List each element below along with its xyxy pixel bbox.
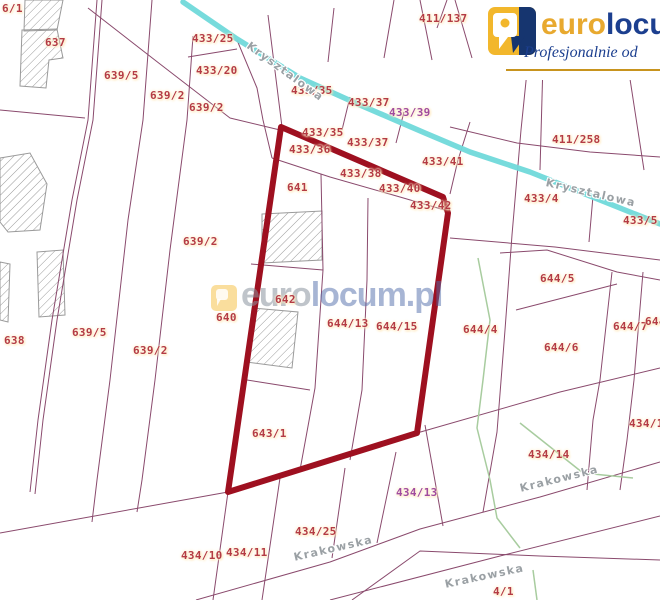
- parcel-boundary-line: [450, 127, 660, 157]
- parcel-boundary-line: [213, 492, 228, 600]
- brand-locum: locum: [606, 8, 660, 41]
- cadastral-map-page: { "logo": { "brand_euro": "euro", "brand…: [0, 0, 660, 600]
- parcel-boundary-line: [247, 380, 310, 390]
- cadastral-map-canvas: [0, 0, 660, 600]
- parcel-boundary-line: [332, 468, 345, 558]
- brand-tagline: Profesjonalnie od: [524, 44, 638, 62]
- parcel-boundary-line: [88, 8, 280, 130]
- parcel-boundary-line: [500, 250, 660, 280]
- parcel-boundary-line: [352, 551, 660, 600]
- brand-name: eurolocum: [541, 8, 660, 42]
- parcel-boundary-line: [455, 0, 472, 58]
- vegetation-lines: [477, 258, 633, 600]
- brand-euro: euro: [541, 8, 606, 41]
- parcel-boundary-line: [137, 36, 193, 512]
- parcel-boundary-line: [620, 272, 643, 490]
- parcel-boundary-line: [516, 284, 617, 310]
- parcel-boundary-line: [188, 49, 237, 57]
- parcel-boundary-line: [268, 15, 282, 127]
- eurolocum-logo[interactable]: eurolocum Profesjonalnie od: [482, 0, 660, 80]
- parcel-boundary-line: [425, 425, 443, 526]
- parcel-boundary-line: [587, 272, 612, 490]
- parcel-boundary-line: [396, 112, 404, 143]
- vegetation-line: [533, 570, 537, 600]
- building-footprint: [262, 211, 322, 263]
- parcel-boundary-line: [262, 478, 280, 600]
- parcel-boundary-line: [0, 110, 85, 118]
- parcel-boundary-line: [483, 42, 530, 512]
- parcel-boundary-line: [420, 0, 432, 60]
- parcel-boundary-line: [450, 122, 470, 194]
- parcel-boundary-line: [450, 238, 660, 260]
- parcel-boundary-line: [377, 452, 396, 543]
- vegetation-line: [520, 423, 633, 478]
- tagline-underline: [506, 69, 660, 71]
- building-footprint: [0, 153, 47, 232]
- building-footprint: [0, 262, 10, 322]
- parcel-boundary-line: [92, 0, 152, 522]
- parcel-boundary-line: [0, 492, 228, 533]
- parcel-boundary-line: [328, 8, 334, 62]
- building-footprint: [37, 250, 65, 317]
- parcel-boundary-line: [350, 198, 368, 460]
- parcel-boundary-line: [437, 0, 447, 28]
- building-footprint: [20, 29, 63, 88]
- parcel-boundary-line: [417, 368, 660, 433]
- parcel-boundary-line: [384, 0, 394, 58]
- building-footprint: [24, 0, 63, 31]
- parcel-boundary-line: [589, 196, 593, 242]
